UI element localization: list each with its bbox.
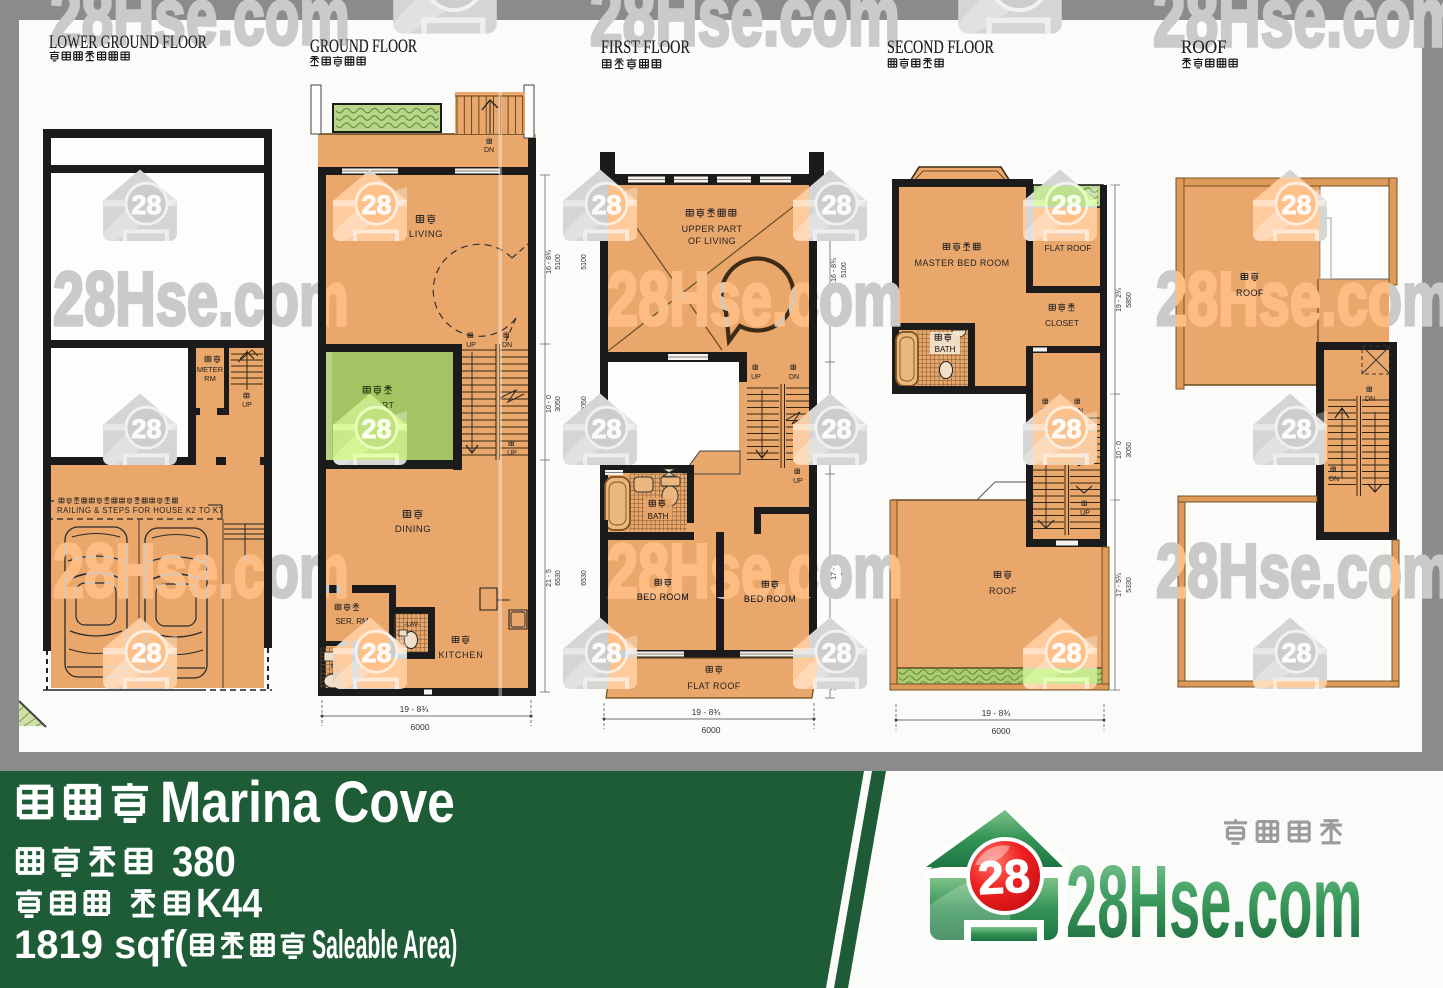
svg-text:CLOSET: CLOSET [1045,318,1079,328]
svg-text:5100: 5100 [581,254,588,270]
svg-text:UP: UP [242,402,252,409]
svg-text:19 - 8¾: 19 - 8¾ [692,707,722,717]
svg-text:28: 28 [131,190,161,220]
svg-text:19 - 8¾: 19 - 8¾ [400,704,430,714]
svg-text:28Hse.com: 28Hse.com [1156,258,1443,342]
svg-text:28: 28 [821,190,851,220]
svg-text:28: 28 [1281,414,1311,444]
svg-text:LIVING: LIVING [409,229,443,240]
svg-text:6530: 6530 [555,570,562,586]
svg-text:ROOF: ROOF [1181,36,1227,57]
svg-text:6530: 6530 [581,570,588,586]
svg-text:21 - 5: 21 - 5 [546,569,553,587]
svg-text:UP: UP [1080,510,1090,517]
svg-text:GROUND FLOOR: GROUND FLOOR [310,35,418,57]
svg-text:380: 380 [172,837,236,885]
svg-text:6000: 6000 [992,726,1011,736]
svg-text:Marina Cove: Marina Cove [160,770,455,834]
svg-text:28: 28 [1051,190,1081,220]
svg-text:28Hse.com: 28Hse.com [53,530,349,614]
svg-text:28: 28 [591,638,621,668]
svg-text:DINING: DINING [395,524,431,535]
svg-text:28: 28 [998,0,1040,5]
svg-text:6000: 6000 [702,725,721,735]
svg-text:DN: DN [502,342,512,349]
svg-text:ROOF: ROOF [1236,288,1264,298]
svg-text:28: 28 [1051,638,1081,668]
svg-text:19 - 8¾: 19 - 8¾ [982,708,1012,718]
svg-text:BATH: BATH [935,345,956,354]
svg-text:BATH: BATH [648,512,669,521]
svg-text:BED ROOM: BED ROOM [744,594,796,604]
svg-text:FIRST FLOOR: FIRST FLOOR [601,36,691,57]
svg-text:28: 28 [821,638,851,668]
svg-text:28: 28 [977,849,1032,905]
svg-text:5100: 5100 [555,254,562,270]
svg-text:UPPER PART: UPPER PART [682,224,743,234]
svg-text:16 - 8¾: 16 - 8¾ [546,250,553,274]
svg-text:28Hse.com: 28Hse.com [1066,844,1362,959]
svg-text:28: 28 [1051,414,1081,444]
svg-text:DN: DN [1365,396,1375,403]
svg-text:28: 28 [361,638,391,668]
svg-text:28: 28 [821,414,851,444]
svg-text:FLAT ROOF: FLAT ROOF [687,681,740,691]
svg-text:1819 sqf(: 1819 sqf( [14,923,188,967]
svg-text:28: 28 [361,414,391,444]
svg-text:OF LIVING: OF LIVING [688,236,736,246]
svg-text:UP: UP [507,450,517,457]
svg-text:UP: UP [751,374,761,381]
svg-text:28: 28 [433,0,475,5]
svg-text:19 - 2¾: 19 - 2¾ [1116,288,1123,312]
svg-text:SECOND FLOOR: SECOND FLOOR [887,36,995,58]
svg-text:5330: 5330 [1126,577,1133,593]
svg-text:28: 28 [131,414,161,444]
svg-text:6000: 6000 [411,722,430,732]
svg-text:28Hse.com: 28Hse.com [607,258,903,342]
svg-text:FLAT ROOF: FLAT ROOF [1045,243,1092,253]
svg-text:5850: 5850 [1126,292,1133,308]
svg-text:28: 28 [1281,638,1311,668]
svg-text:K44: K44 [196,881,263,927]
svg-text:28: 28 [591,190,621,220]
svg-text:DN: DN [789,374,799,381]
svg-text:28: 28 [361,190,391,220]
svg-text:10 - 0: 10 - 0 [546,395,553,413]
svg-text:3050: 3050 [555,396,562,412]
svg-text:METER: METER [197,365,224,374]
svg-text:28Hse.com: 28Hse.com [1156,530,1443,614]
svg-text:LOWER GROUND FLOOR: LOWER GROUND FLOOR [49,31,207,53]
svg-text:RAILING & STEPS FOR HOUSE K2 T: RAILING & STEPS FOR HOUSE K2 TO K7 [57,506,223,515]
svg-text:DN: DN [484,147,494,154]
svg-text:28: 28 [131,638,161,668]
svg-text:KITCHEN: KITCHEN [438,650,483,660]
svg-text:RM: RM [204,374,216,383]
svg-text:UP: UP [793,478,803,485]
svg-text:MASTER BED ROOM: MASTER BED ROOM [914,258,1009,268]
svg-text:UP: UP [466,342,476,349]
svg-text:-LAV-: -LAV- [404,621,420,628]
svg-text:17 - 5¾: 17 - 5¾ [1116,573,1123,597]
svg-text:Saleable Area): Saleable Area) [312,922,457,967]
svg-text:28: 28 [591,414,621,444]
svg-text:3050: 3050 [1126,442,1133,458]
svg-text:ROOF: ROOF [989,586,1017,596]
svg-text:BED ROOM: BED ROOM [637,592,689,602]
svg-text:28: 28 [1281,190,1311,220]
svg-text:10 - 0: 10 - 0 [1116,441,1123,459]
svg-text:DN: DN [1329,476,1339,483]
svg-text:28Hse.com: 28Hse.com [53,258,349,342]
